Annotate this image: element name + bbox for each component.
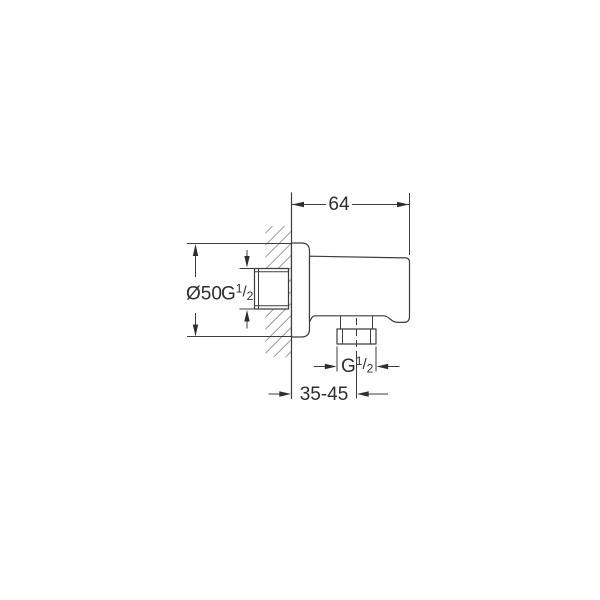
escutcheon-flange xyxy=(292,243,310,337)
dimension-label-flange-diameter: Ø50 xyxy=(186,284,222,305)
dimension-label-projection: 64 xyxy=(328,194,350,215)
union-body xyxy=(310,256,410,322)
dimension-wall-thread: G1/2 xyxy=(221,250,255,329)
dimension-label-installation-depth: 35-45 xyxy=(300,384,349,405)
dimension-label-wall-thread: G1/2 xyxy=(221,282,254,305)
dimension-label-outlet-thread: G1/2 xyxy=(341,354,374,377)
dimension-installation-depth: 35-45 xyxy=(269,384,389,405)
technical-drawing-page: 64 Ø50 G1/2 G1/2 35-45 xyxy=(0,0,600,600)
wall-union-technical-drawing: 64 Ø50 G1/2 G1/2 35-45 xyxy=(0,0,600,600)
wall-thread-boss xyxy=(255,269,289,310)
dimension-projection-width: 64 xyxy=(292,193,410,255)
